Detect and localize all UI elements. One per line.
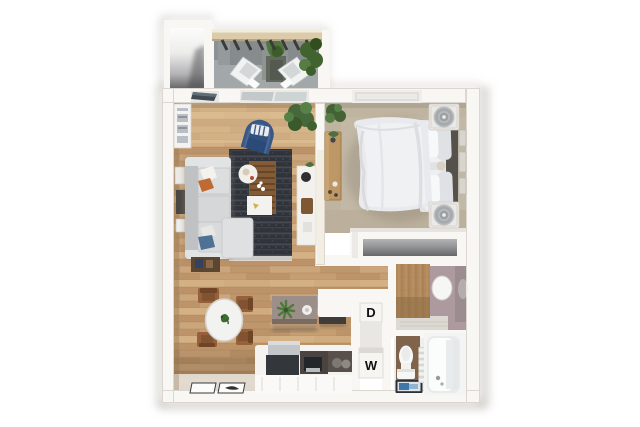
svg-text:W: W bbox=[365, 358, 378, 373]
svg-text:D: D bbox=[366, 305, 375, 320]
